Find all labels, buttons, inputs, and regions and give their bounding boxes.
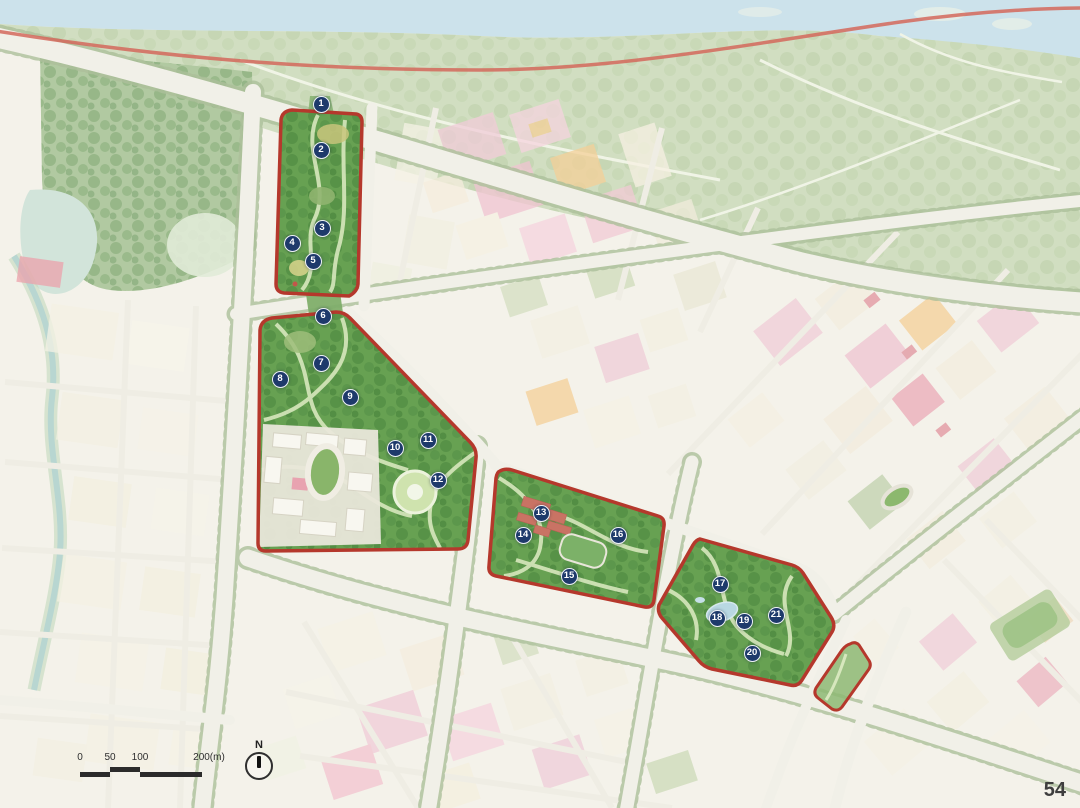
school-campus [259, 424, 381, 547]
scale-tick-200: 200(m) [193, 752, 225, 763]
mound-plaza [394, 471, 436, 513]
masterplan-map [0, 0, 1080, 808]
park-parcel-1 [276, 110, 362, 296]
scale-tick-0: 0 [77, 752, 83, 763]
scale-bar: 0 50 100 200(m) [80, 752, 230, 786]
north-arrow: N [244, 739, 274, 780]
running-track [305, 444, 344, 499]
masterplan-page: 123456789101112131415161718192021 0 50 1… [0, 0, 1080, 808]
page-number: 54 [1044, 779, 1066, 802]
scale-bar-segments [80, 767, 202, 777]
wash-overlay [0, 0, 1080, 808]
north-label: N [244, 739, 274, 751]
scale-tick-100: 100 [132, 752, 149, 763]
compass-icon [245, 752, 273, 780]
scale-tick-50: 50 [104, 752, 115, 763]
